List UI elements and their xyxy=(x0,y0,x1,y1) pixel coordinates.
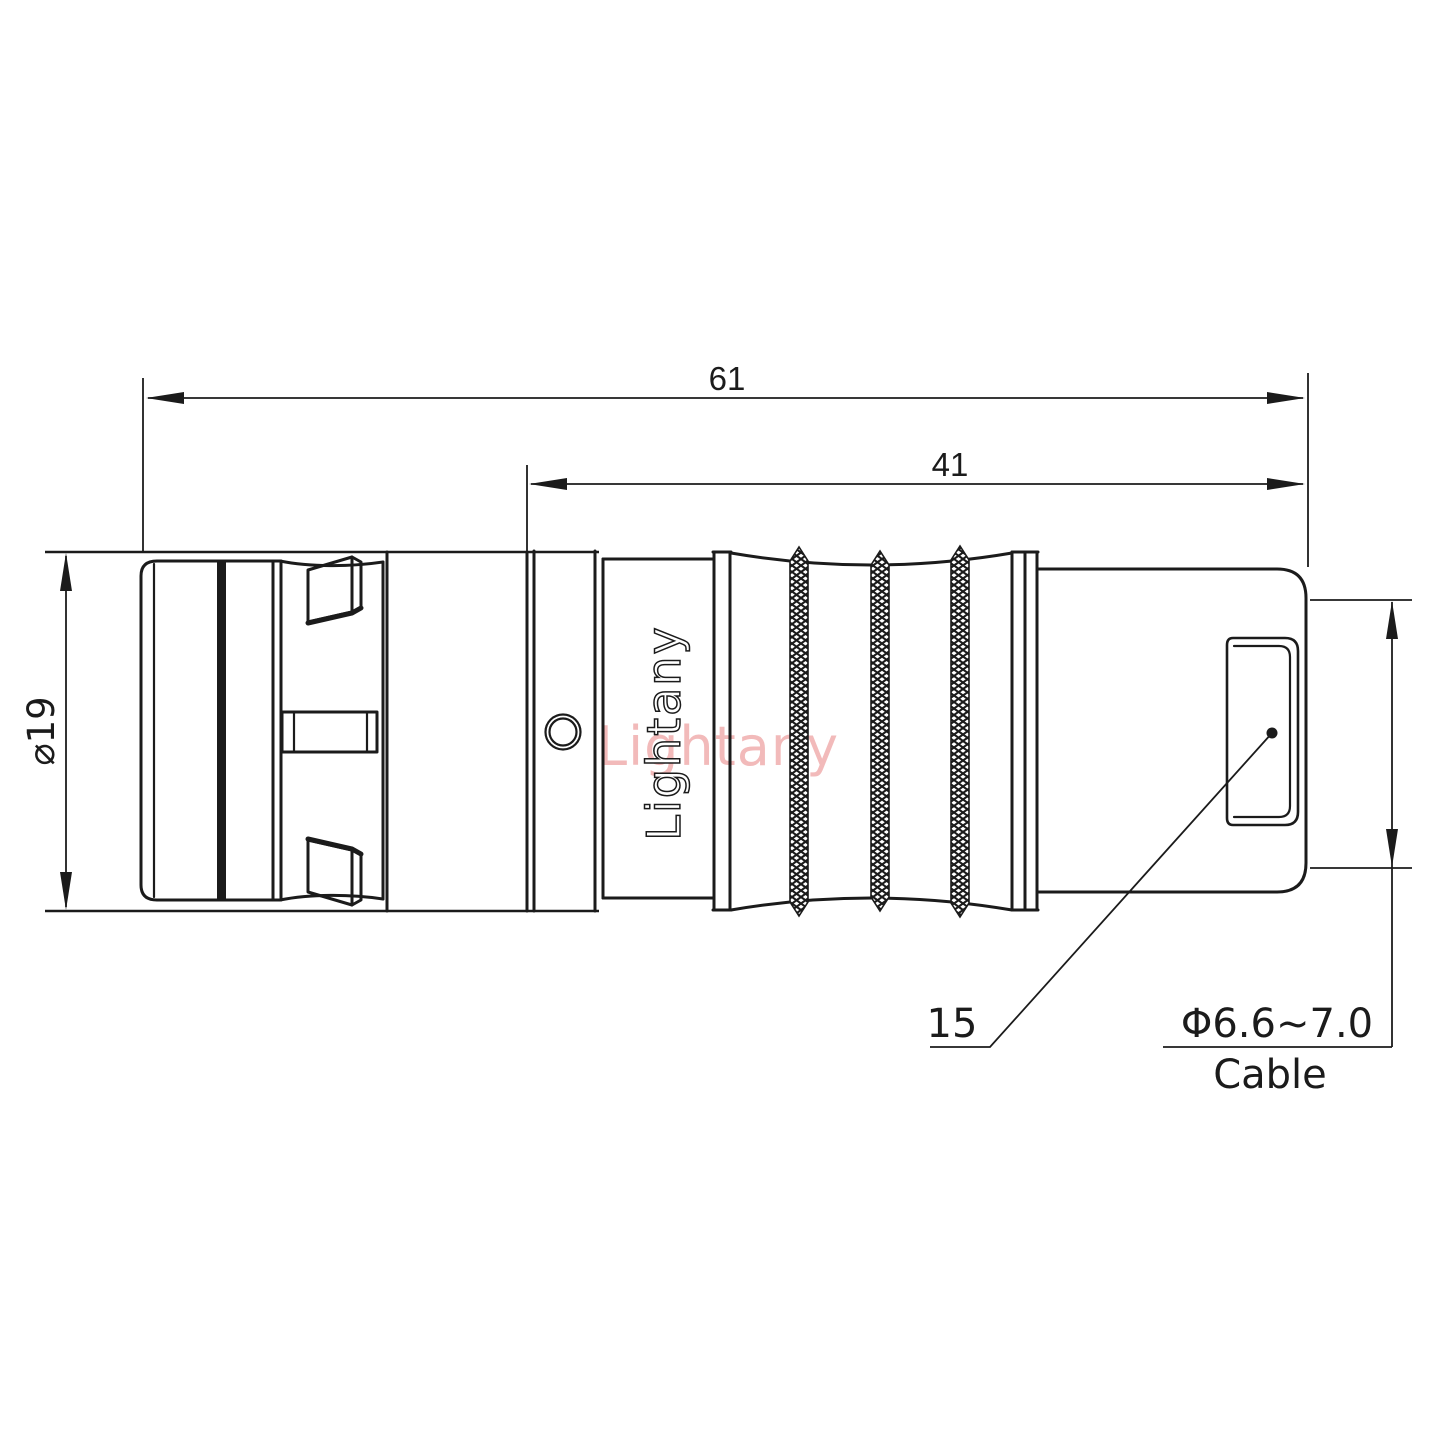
callout-15: 15 xyxy=(927,728,1278,1048)
sleeve-key-slot xyxy=(282,712,377,752)
knurl-band-2 xyxy=(871,551,889,911)
brand-engraving-text: Lightany xyxy=(637,625,691,840)
release-sleeve xyxy=(141,557,383,905)
sleeve-black-band xyxy=(217,561,226,900)
dim-dia19-label: ⌀19 xyxy=(20,696,63,765)
cable-clamp-window xyxy=(1227,638,1298,825)
collet-nut xyxy=(546,715,581,750)
dimension-rear-length: 41 xyxy=(527,446,1305,551)
technical-drawing-canvas: Lightany xyxy=(0,0,1440,1440)
knurl-band-3 xyxy=(951,546,969,917)
drawing-page: Lightany xyxy=(0,0,1440,1440)
dim-61-label: 61 xyxy=(709,360,746,397)
dim-41-label: 41 xyxy=(932,446,969,483)
cable-word-label: Cable xyxy=(1213,1052,1327,1098)
dimension-diameter: ⌀19 xyxy=(20,553,72,910)
callout-15-dot xyxy=(1267,728,1278,739)
cable-diameter-label: Φ6.6~7.0 xyxy=(1181,1001,1373,1047)
dimension-overall-length: 61 xyxy=(143,360,1308,567)
knurl-band-1 xyxy=(790,547,808,916)
main-barrel xyxy=(45,551,599,911)
callout-15-label: 15 xyxy=(927,1001,978,1047)
dimension-cable-entry: Φ6.6~7.0 Cable xyxy=(1163,600,1412,1098)
connector-side-view: Lightany xyxy=(45,546,1306,917)
vent-hole-icon xyxy=(546,715,581,750)
